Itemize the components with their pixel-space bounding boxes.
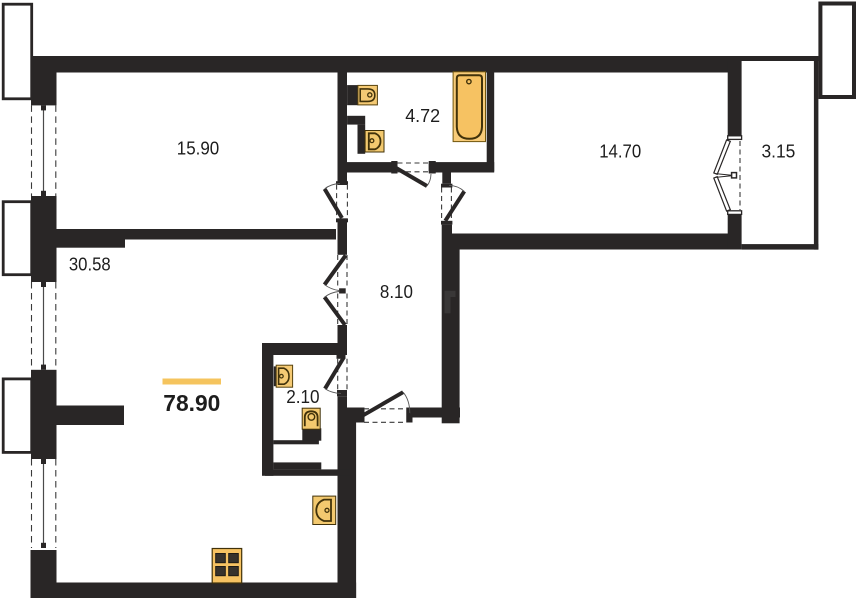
svg-text:14.70: 14.70 (599, 141, 641, 162)
svg-text:15.90: 15.90 (177, 137, 220, 158)
svg-text:8.10: 8.10 (380, 281, 413, 302)
svg-text:30.58: 30.58 (69, 254, 111, 275)
svg-text:2.10: 2.10 (286, 386, 319, 407)
svg-text:4.72: 4.72 (405, 105, 440, 126)
svg-text:78.90: 78.90 (163, 390, 220, 416)
svg-text:3.15: 3.15 (761, 141, 795, 162)
